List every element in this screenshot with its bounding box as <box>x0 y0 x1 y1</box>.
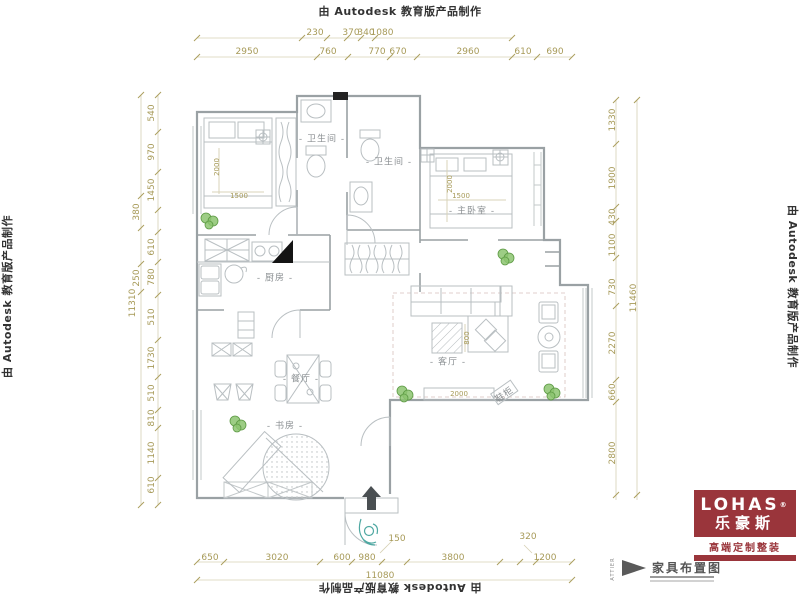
dim-coffee-table: 800 <box>463 331 471 344</box>
lohas-logo-red-block: LOHAS® 乐豪斯 <box>694 490 796 537</box>
dimension-label: 730 <box>608 278 618 295</box>
dimension-label: 3020 <box>266 553 289 563</box>
dimension-label: 610 <box>147 476 157 493</box>
dimension-label: 1450 <box>147 179 157 202</box>
dimension-label: 510 <box>147 308 157 325</box>
dimension-label: 810 <box>147 409 157 426</box>
plant-icon <box>230 416 246 432</box>
dimension-label: 2960 <box>457 47 480 57</box>
room-label-dining-room: - 餐厅 - <box>283 372 319 385</box>
dimension-label: 230 <box>306 28 323 38</box>
dimension-label: 610 <box>514 47 531 57</box>
walls <box>197 92 588 498</box>
hallway-closet <box>345 243 409 275</box>
bathroom2-fixtures <box>350 130 380 212</box>
dimension-label: 11460 <box>629 284 639 313</box>
floor-plan-drawing <box>0 0 800 598</box>
study-furniture <box>223 417 390 500</box>
plant-icon <box>544 384 560 400</box>
kitchen-fixtures <box>197 239 330 338</box>
dimension-label: 430 <box>608 208 618 225</box>
dimension-label: 1140 <box>147 442 157 465</box>
dimension-label: 970 <box>147 143 157 160</box>
dimension-label: 510 <box>147 384 157 401</box>
dimension-label: 2270 <box>608 332 618 355</box>
lohas-brand-text: LOHAS® <box>694 496 796 514</box>
dimension-label: 670 <box>389 47 406 57</box>
room-label-master-bedroom: - 主卧室 - <box>449 204 495 217</box>
dimension-label: 650 <box>201 553 218 563</box>
dim-bed1-width: 1500 <box>230 192 248 200</box>
dimension-label: 600 <box>333 553 350 563</box>
room-label-kitchen: - 厨房 - <box>257 271 293 284</box>
room-label-bathroom-1: - 卫生间 - <box>299 132 345 145</box>
plant-icon <box>201 213 218 229</box>
bedroom1-furniture <box>204 118 297 235</box>
dimension-label: 610 <box>147 238 157 255</box>
room-label-living-room: - 客厅 - <box>430 355 466 368</box>
dimension-label: 1100 <box>608 234 618 257</box>
dimension-label: 1200 <box>534 553 557 563</box>
dimension-label: 770 <box>368 47 385 57</box>
dimension-label: 320 <box>519 532 536 542</box>
drawing-title: 家具布置图 <box>652 559 722 576</box>
column-block <box>333 92 348 100</box>
dimension-label: 3800 <box>442 553 465 563</box>
dimension-label: 760 <box>319 47 336 57</box>
dimension-label: 11080 <box>366 571 395 581</box>
dimension-label: 660 <box>608 383 618 400</box>
lohas-brand-cn-text: 乐豪斯 <box>694 514 796 533</box>
dimension-label: 250 <box>132 269 142 286</box>
dim-bed1-length: 2000 <box>213 158 221 176</box>
plant-icon <box>498 249 514 265</box>
dimension-label: 1080 <box>371 28 394 38</box>
cad-floor-plan-canvas: 由 Autodesk 教育版产品制作 由 Autodesk 教育版产品制作 由 … <box>0 0 800 598</box>
dimension-label: 2950 <box>236 47 259 57</box>
dimension-label: 380 <box>132 203 142 220</box>
room-label-bathroom-2: - 卫生间 - <box>366 155 412 168</box>
room-label-study: - 书房 - <box>267 419 303 432</box>
dim-bed2-width: 1500 <box>452 192 470 200</box>
dimension-label: 11310 <box>128 289 138 318</box>
dimension-label: 690 <box>546 47 563 57</box>
dimension-label: 980 <box>358 553 375 563</box>
title-underline-light <box>650 580 714 582</box>
title-triangle-icon <box>622 560 646 576</box>
title-underline <box>650 576 714 578</box>
dimension-label: 150 <box>388 534 405 544</box>
dimension-label: 540 <box>147 104 157 121</box>
registered-mark: ® <box>780 501 790 509</box>
dim-bed2-length: 2000 <box>446 175 454 193</box>
dimension-label: 2800 <box>608 442 618 465</box>
dim-tv-cabinet: 2000 <box>450 390 468 398</box>
living-furniture <box>411 286 560 405</box>
dimension-label: 1730 <box>147 347 157 370</box>
dimension-label: 780 <box>147 268 157 285</box>
dimension-label: 1330 <box>608 109 618 132</box>
dimension-label: 1900 <box>608 167 618 190</box>
lohas-logo: LOHAS® 乐豪斯 高端定制整装 <box>694 490 796 561</box>
drawing-title-block: ATTIER 家具布置图 <box>610 556 730 586</box>
title-side-text: ATTIER <box>610 552 616 586</box>
lohas-tagline: 高端定制整装 <box>694 537 796 555</box>
